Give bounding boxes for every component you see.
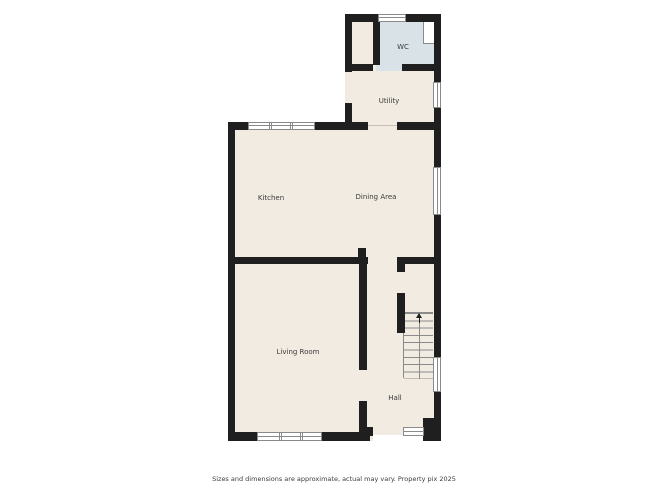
- wall-main-top-c: [397, 122, 441, 130]
- wc-recess: [423, 21, 434, 44]
- window-living-room: [257, 432, 322, 441]
- window-glass-line: [258, 436, 321, 437]
- wall-wc-divider: [373, 21, 380, 65]
- wall-wc-bottom-left: [345, 64, 373, 71]
- floor-area-main-section: [228, 122, 441, 441]
- window-wc: [378, 14, 406, 22]
- wall-stairs-side: [397, 293, 405, 333]
- room-label-utility: Utility: [379, 97, 400, 105]
- window-mullion: [300, 433, 303, 440]
- utility-door-threshold: [368, 125, 397, 126]
- room-label-living-room: Living Room: [277, 348, 320, 356]
- window-glass-line: [437, 83, 438, 107]
- room-label-dining-area: Dining Area: [356, 193, 397, 201]
- wall-main-top-b: [315, 122, 368, 130]
- floor-plan-page: WC Utility Kitchen Dining Area Living Ro…: [0, 0, 668, 501]
- window-utility: [433, 82, 441, 108]
- wall-divider-stub: [358, 248, 366, 257]
- wall-living-hall-upper: [359, 257, 367, 370]
- wall-stairs-stub: [397, 264, 405, 272]
- wall-kitchen-living-divider: [228, 257, 368, 264]
- window-glass-line: [249, 125, 314, 126]
- disclaimer-caption: Sizes and dimensions are approximate, ac…: [212, 475, 456, 483]
- window-mullion: [269, 123, 272, 129]
- wall-bottom-hall: [359, 427, 373, 436]
- room-label-kitchen: Kitchen: [258, 194, 284, 202]
- window-glass-line: [404, 431, 423, 432]
- wall-dining-hall-divider: [397, 257, 441, 264]
- wall-left-exterior: [228, 122, 235, 441]
- window-kitchen: [248, 122, 315, 130]
- room-label-wc: WC: [397, 43, 409, 51]
- room-label-hall: Hall: [388, 394, 401, 402]
- window-hall-side: [433, 357, 441, 392]
- window-mullion: [290, 123, 293, 129]
- window-dining: [433, 167, 441, 215]
- window-glass-line: [437, 358, 438, 391]
- window-hall-bottom: [403, 427, 424, 436]
- wall-corner-block: [423, 418, 441, 441]
- wall-wc-bottom-right: [402, 64, 434, 71]
- window-mullion: [279, 433, 282, 440]
- window-glass-line: [437, 168, 438, 214]
- window-glass-line: [379, 17, 405, 18]
- stairs-up-arrow-stem: [419, 318, 420, 323]
